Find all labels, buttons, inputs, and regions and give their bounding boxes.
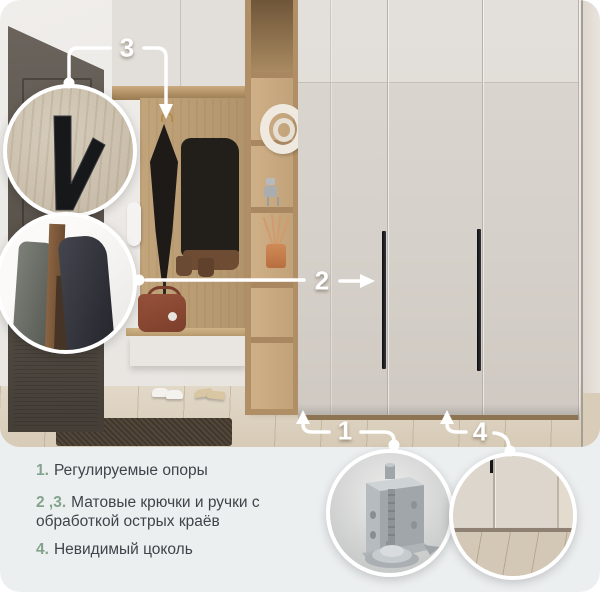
charcoal-panel bbox=[57, 234, 116, 354]
wardrobe bbox=[298, 0, 580, 420]
brass-hook bbox=[161, 112, 173, 122]
robot-figurine bbox=[264, 186, 277, 197]
right-wall bbox=[581, 0, 600, 447]
bench-drawer bbox=[130, 336, 245, 366]
infographic-card: 3 2 1 4 1.Регулируемые опоры 2 ,3.Матовы… bbox=[0, 0, 600, 592]
callout-3-number: 3 bbox=[120, 33, 134, 64]
floor-planks bbox=[453, 532, 573, 576]
legend-item-4-number: 4. bbox=[36, 541, 49, 558]
wardrobe-top-row bbox=[298, 0, 580, 82]
inset-hook-closeup bbox=[3, 84, 137, 218]
inset-plinth-closeup bbox=[449, 452, 577, 580]
robot-figurine bbox=[266, 178, 275, 185]
wardrobe-handle bbox=[477, 229, 481, 371]
robot-figurine bbox=[267, 197, 279, 206]
wardrobe-door-seam bbox=[482, 0, 483, 420]
shelf-cell-top bbox=[251, 0, 293, 72]
boot bbox=[176, 256, 192, 276]
legend-item-2-3: 2 ,3.Матовые крючки и ручки с обработкой… bbox=[36, 493, 328, 531]
reed-diffuser-bottle bbox=[266, 244, 286, 268]
inset-adjustable-foot-closeup bbox=[326, 449, 454, 577]
leather-bag bbox=[138, 294, 186, 332]
legend-item-1-number: 1. bbox=[36, 462, 49, 479]
bag-charm bbox=[168, 312, 177, 321]
callout-1-number: 1 bbox=[338, 416, 352, 447]
shelf-divider bbox=[251, 282, 293, 288]
cabinet-seam bbox=[180, 0, 181, 86]
wardrobe-handle bbox=[382, 231, 386, 369]
legend-item-2-3-text: Матовые крючки и ручки с обработкой остр… bbox=[36, 494, 260, 530]
inset-panel-edges-closeup bbox=[0, 212, 137, 354]
open-shelving-column bbox=[245, 0, 300, 415]
legend-item-1: 1.Регулируемые опоры bbox=[36, 461, 328, 480]
wall-corner bbox=[557, 456, 575, 530]
legend-list: 1.Регулируемые опоры 2 ,3.Матовые крючки… bbox=[36, 461, 328, 572]
wardrobe-horizontal-seam bbox=[298, 82, 580, 84]
black-hook-icon bbox=[7, 88, 133, 214]
legend-item-2-3-number: 2 ,3. bbox=[36, 494, 66, 511]
callout-4-number: 4 bbox=[473, 417, 487, 448]
door-seam bbox=[493, 456, 495, 530]
donut-vase-loop bbox=[273, 118, 295, 142]
hanging-coat bbox=[181, 138, 239, 258]
boot bbox=[198, 258, 214, 277]
right-floor bbox=[583, 393, 600, 447]
legend-item-4-text: Невидимый цоколь bbox=[54, 541, 193, 558]
wardrobe-door-seam bbox=[387, 0, 388, 420]
intercom-handset bbox=[127, 202, 141, 246]
legend-item-4: 4.Невидимый цоколь bbox=[36, 540, 328, 559]
legend-item-1-text: Регулируемые опоры bbox=[54, 462, 208, 479]
adjustable-foot-icon bbox=[330, 453, 450, 573]
shelf-divider bbox=[251, 337, 293, 343]
wardrobe-side-edge bbox=[578, 0, 579, 420]
callout-2-number: 2 bbox=[315, 266, 329, 297]
wardrobe-door-seam bbox=[330, 0, 331, 420]
shelf-divider bbox=[251, 207, 293, 213]
shelf-divider bbox=[251, 72, 293, 78]
white-sneakers bbox=[152, 386, 186, 400]
beige-heels bbox=[194, 386, 226, 401]
